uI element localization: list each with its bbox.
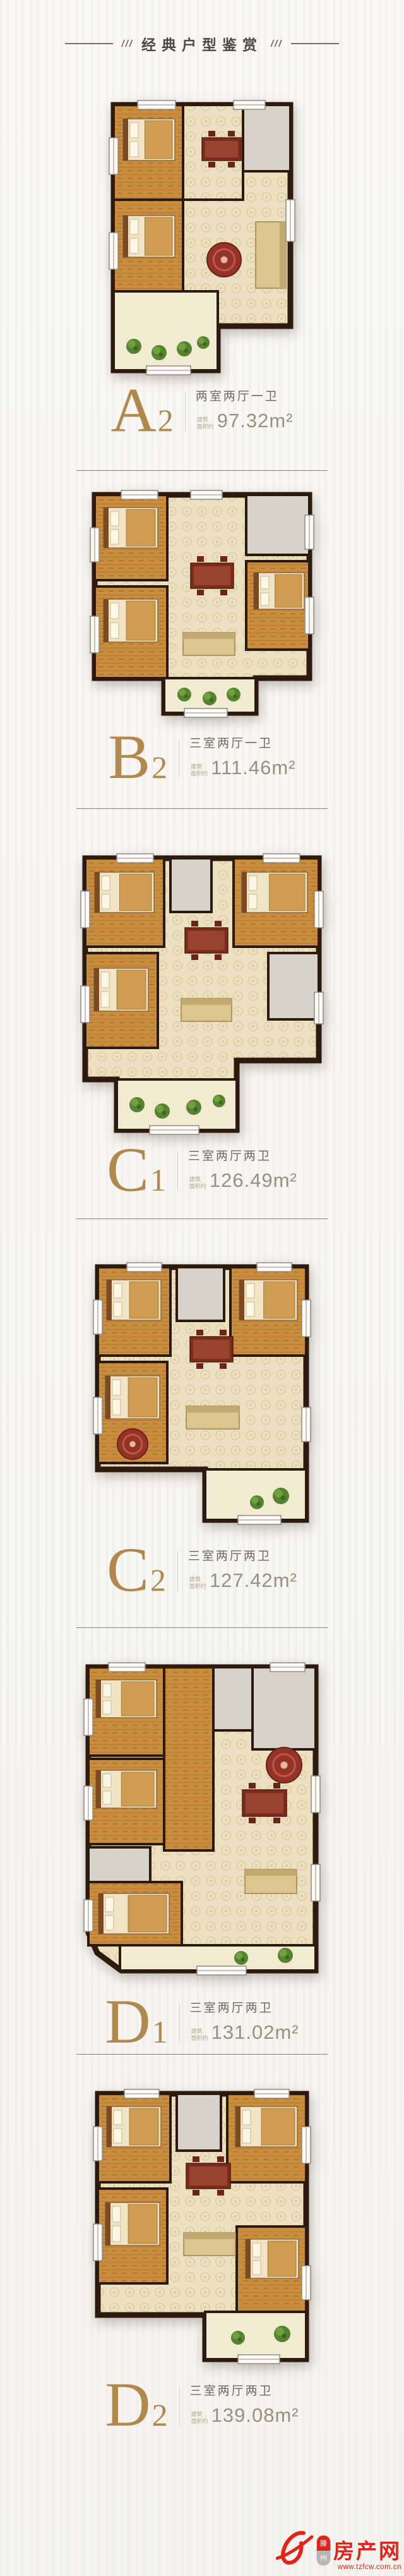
area-number: 126.49 (210, 1169, 273, 1191)
area-unit: m² (271, 756, 295, 779)
room-config-text: 三室两厅两卫 (190, 1998, 299, 2015)
header-line-left (65, 43, 113, 44)
floorplan-b2 (88, 489, 316, 722)
area-value: 97.32m² (217, 410, 294, 432)
section-divider (76, 2054, 328, 2055)
plan-section-b2: B2三室两厅一卫建筑面积约111.46m² (0, 489, 404, 809)
plan-label-c1: C1三室两厅两卫建筑面积约126.49m² (107, 1145, 297, 1194)
area-prefix-line1: 建筑 (197, 416, 214, 423)
plan-label-d1: D1三室两厅两卫建筑面积约131.02m² (105, 1997, 299, 2046)
plan-number: 2 (150, 1567, 166, 1593)
plan-meta: 三室两厅一卫建筑面积约111.46m² (189, 734, 295, 782)
plan-number: 2 (152, 2402, 168, 2427)
area-prefix-line2: 面积约 (191, 2035, 208, 2041)
area-unit: m² (275, 2021, 299, 2043)
room-config-text: 三室两厅两卫 (188, 1146, 297, 1163)
plan-code: D2 (105, 2380, 167, 2429)
floorplan-drawing (92, 1261, 312, 1526)
city-badge-top: 滕 (317, 2536, 330, 2551)
floorplan-list: A2两室两厅一卫建筑面积约97.32m²B2三室两厅一卫建筑面积约111.46m… (0, 99, 404, 2429)
area-prefix: 建筑面积约 (191, 2411, 208, 2424)
area-row: 建筑面积约131.02m² (190, 2021, 299, 2044)
area-unit: m² (269, 410, 293, 432)
plan-code: B2 (108, 732, 167, 782)
brand-text: 房产网 (333, 2541, 401, 2563)
label-divider (179, 2386, 180, 2426)
area-prefix: 建筑面积约 (189, 1176, 206, 1189)
plan-meta: 三室两厅两卫建筑面积约131.02m² (190, 1998, 299, 2046)
area-prefix: 建筑面积约 (197, 416, 214, 430)
area-number: 139.08 (211, 2404, 275, 2426)
label-divider (177, 1552, 178, 1591)
area-unit: m² (273, 1169, 297, 1191)
room-config-text: 两室两厅一卫 (196, 387, 294, 404)
brand-swash-icon (276, 2530, 314, 2567)
area-prefix-line2: 面积约 (191, 2418, 208, 2424)
area-prefix-line1: 建筑 (189, 1576, 206, 1583)
header-slashes-right: /// (271, 39, 283, 49)
brand-url: www.tzfcw.com.cn (338, 2563, 401, 2571)
section-divider (76, 470, 328, 471)
watermark-logo: 滕 州 房产网 www.tzfcw.com.cn (276, 2530, 401, 2571)
floorplan-c2 (92, 1261, 312, 1526)
header-line-right (291, 43, 339, 44)
section-divider (76, 1627, 328, 1628)
area-prefix-line1: 建筑 (191, 2411, 208, 2417)
plan-letter: C (107, 1145, 149, 1194)
header-slashes-left: /// (121, 39, 133, 49)
plan-letter: A (111, 386, 157, 435)
area-row: 建筑面积约97.32m² (196, 410, 294, 432)
plan-meta: 三室两厅两卫建筑面积约127.42m² (188, 1546, 297, 1595)
plan-label-c2: C2三室两厅两卫建筑面积约127.42m² (107, 1545, 297, 1595)
area-prefix: 建筑面积约 (189, 1576, 206, 1589)
plan-meta: 两室两厅一卫建筑面积约97.32m² (196, 387, 294, 435)
area-value: 127.42m² (210, 1569, 297, 1592)
page-title: 经典户型鉴赏 (141, 33, 263, 54)
plan-code: D1 (105, 1997, 167, 2046)
area-prefix-line1: 建筑 (189, 1176, 206, 1182)
label-divider (179, 739, 179, 778)
promo-page: /// 经典户型鉴赏 /// A2两室两厅一卫建筑面积约97.32m²B2三室两… (0, 0, 404, 2576)
label-divider (185, 392, 186, 431)
room-config-text: 三室两厅两卫 (188, 1546, 297, 1564)
area-unit: m² (275, 2404, 299, 2426)
plan-label-b2: B2三室两厅一卫建筑面积约111.46m² (108, 732, 295, 782)
plan-number: 2 (151, 755, 167, 780)
plan-letter: B (108, 732, 150, 782)
area-unit: m² (273, 1569, 297, 1591)
plan-code: A2 (111, 386, 174, 435)
floorplan-drawing (79, 852, 325, 1136)
area-value: 131.02m² (211, 2021, 299, 2044)
plan-section-c2: C2三室两厅两卫建筑面积约127.42m² (0, 1261, 404, 1628)
floorplan-drawing (82, 1661, 322, 1977)
city-badge: 滕 州 (316, 2535, 331, 2566)
floorplan-d1 (82, 1661, 322, 1977)
label-divider (177, 1151, 178, 1191)
area-prefix-line1: 建筑 (191, 2028, 208, 2034)
plan-section-d1: D1三室两厅两卫建筑面积约131.02m² (0, 1661, 404, 2055)
plan-label-d2: D2三室两厅两卫建筑面积约139.08m² (105, 2380, 299, 2429)
area-prefix: 建筑面积约 (191, 2028, 208, 2041)
area-number: 111.46 (211, 756, 271, 779)
brand-text-block: 房产网 www.tzfcw.com.cn (333, 2541, 401, 2571)
area-row: 建筑面积约127.42m² (188, 1569, 297, 1592)
label-divider (179, 2003, 180, 2043)
floorplan-drawing (88, 489, 316, 722)
plan-number: 1 (152, 2019, 168, 2044)
area-value: 126.49m² (210, 1169, 297, 1192)
floorplan-drawing (107, 99, 297, 377)
plan-meta: 三室两厅两卫建筑面积约126.49m² (188, 1146, 297, 1194)
area-row: 建筑面积约111.46m² (189, 756, 295, 779)
area-number: 131.02 (211, 2021, 275, 2043)
plan-section-c1: C1三室两厅两卫建筑面积约126.49m² (0, 852, 404, 1219)
area-prefix-line2: 面积约 (197, 423, 214, 430)
area-prefix: 建筑面积约 (191, 763, 208, 777)
area-row: 建筑面积约139.08m² (190, 2404, 299, 2427)
section-divider (76, 808, 328, 809)
plan-letter: D (105, 2380, 150, 2429)
area-value: 111.46m² (211, 756, 295, 779)
room-config-text: 三室两厅一卫 (189, 734, 295, 751)
area-prefix-line1: 建筑 (191, 763, 208, 770)
plan-section-d2: D2三室两厅两卫建筑面积约139.08m² (0, 2087, 404, 2429)
section-divider (76, 1218, 328, 1219)
plan-section-a2: A2两室两厅一卫建筑面积约97.32m² (0, 99, 404, 471)
floorplan-a2 (107, 99, 297, 377)
area-row: 建筑面积约126.49m² (188, 1169, 297, 1192)
area-prefix-line2: 面积约 (189, 1183, 206, 1189)
floorplan-c1 (79, 852, 325, 1136)
area-prefix-line2: 面积约 (189, 1583, 206, 1589)
page-header: /// 经典户型鉴赏 /// (0, 0, 404, 54)
plan-code: C2 (107, 1545, 166, 1595)
area-prefix-line2: 面积约 (191, 770, 208, 777)
floorplan-drawing (92, 2087, 312, 2369)
plan-code: C1 (107, 1145, 166, 1194)
plan-letter: C (107, 1545, 149, 1595)
area-number: 97.32 (217, 410, 270, 432)
floorplan-d2 (92, 2087, 312, 2369)
plan-number: 1 (150, 1167, 166, 1193)
plan-number: 2 (158, 408, 174, 433)
plan-letter: D (105, 1997, 150, 2046)
area-value: 139.08m² (211, 2404, 299, 2427)
plan-label-a2: A2两室两厅一卫建筑面积约97.32m² (111, 386, 294, 435)
plan-meta: 三室两厅两卫建筑面积约139.08m² (190, 2381, 299, 2429)
room-config-text: 三室两厅两卫 (190, 2381, 299, 2398)
city-badge-bottom: 州 (317, 2551, 330, 2566)
area-number: 127.42 (210, 1569, 273, 1591)
